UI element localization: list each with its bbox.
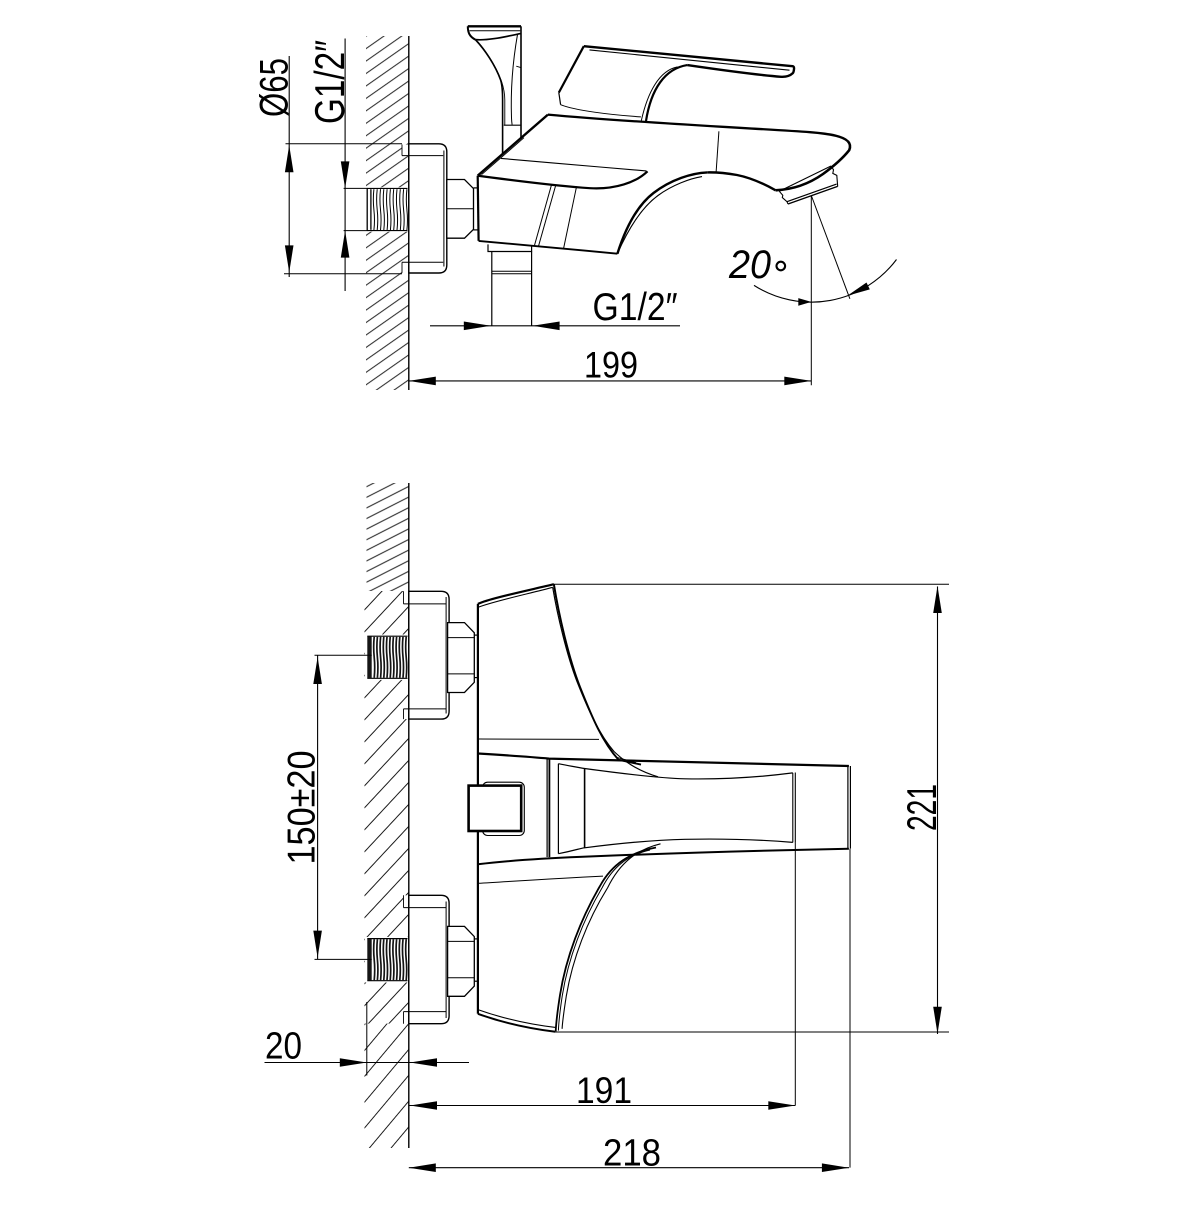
svg-text:191: 191 [576,1070,632,1111]
svg-text:199: 199 [584,345,638,386]
svg-text:G1/2″: G1/2″ [593,286,678,329]
svg-text:20: 20 [265,1026,302,1068]
svg-text:150±20: 150±20 [281,751,324,865]
svg-text:Ø65: Ø65 [253,58,297,117]
svg-text:221: 221 [898,784,945,831]
svg-text:20: 20 [728,243,771,287]
svg-text:G1/2″: G1/2″ [306,40,353,124]
